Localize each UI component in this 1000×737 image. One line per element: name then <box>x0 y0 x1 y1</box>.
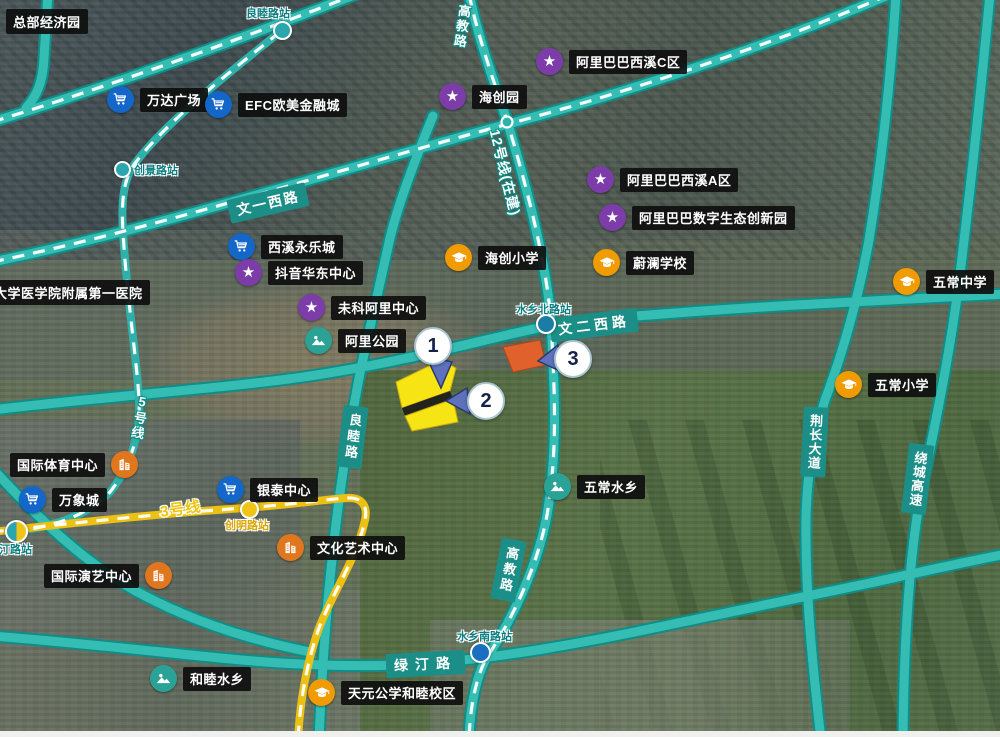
marker-number: 3 <box>567 348 578 371</box>
poi-ali-park[interactable]: 阿里公园 <box>305 327 406 354</box>
poi-hemu-watertown[interactable]: 和睦水乡 <box>150 665 251 692</box>
poi-label: 西溪永乐城 <box>261 235 343 259</box>
station-dot-shuixiang-north <box>536 314 556 334</box>
poi-tianyuan-school-hemu-campus[interactable]: 天元公学和睦校区 <box>308 679 463 706</box>
poi-intl-performing-arts-center[interactable]: 国际演艺中心 <box>44 562 172 589</box>
road-label-luting: 绿汀路 <box>385 650 465 678</box>
graduation-cap-icon <box>835 371 862 398</box>
poi-label: 抖音华东中心 <box>268 261 363 285</box>
star-icon: ★ <box>599 204 626 231</box>
poi-label: 五常中学 <box>926 270 994 294</box>
road-label-jingchang: 荆长大道 <box>800 406 829 477</box>
poi-alibaba-xixi-a[interactable]: ★ 阿里巴巴西溪A区 <box>587 166 738 193</box>
poi-label: 阿里公园 <box>338 329 406 353</box>
shopping-cart-icon <box>228 233 255 260</box>
poi-label: 银泰中心 <box>250 478 318 502</box>
station-label-chuangminglu: 创明路站 <box>225 517 269 533</box>
star-icon: ★ <box>439 83 466 110</box>
poi-label: 未科阿里中心 <box>331 296 426 320</box>
poi-label: 国际演艺中心 <box>44 564 139 588</box>
station-dot-liangmulu <box>273 21 292 40</box>
poi-label: 海创园 <box>472 85 527 109</box>
station-label-shuixiang-south: 水乡南路站 <box>457 628 512 644</box>
marker-number: 1 <box>427 335 438 358</box>
poi-label: EFC欧美金融城 <box>238 93 347 117</box>
poi-label: 阿里巴巴数字生态创新园 <box>632 206 795 230</box>
shopping-cart-icon <box>217 476 244 503</box>
area-label-headquarters-economy-park: 总部经济园 <box>6 9 88 34</box>
poi-label: 海创小学 <box>478 246 546 270</box>
shopping-cart-icon <box>107 86 134 113</box>
poi-alibaba-digital-eco-park[interactable]: ★ 阿里巴巴数字生态创新园 <box>599 204 795 231</box>
landscape-icon <box>150 665 177 692</box>
poi-culture-arts-center[interactable]: 文化艺术中心 <box>277 534 405 561</box>
poi-yintai-center[interactable]: 银泰中心 <box>217 476 318 503</box>
site-marker-3[interactable]: 3 <box>554 340 592 378</box>
graduation-cap-icon <box>893 268 920 295</box>
shopping-cart-icon <box>205 91 232 118</box>
poi-label: 阿里巴巴西溪C区 <box>569 50 687 74</box>
poi-label: 文化艺术中心 <box>310 536 405 560</box>
poi-label: 万达广场 <box>140 88 208 112</box>
poi-weike-ali-center[interactable]: ★ 未科阿里中心 <box>298 294 426 321</box>
station-label-chuangjinglu: 创景路站 <box>134 162 178 178</box>
poi-haichuang-park[interactable]: ★ 海创园 <box>439 83 527 110</box>
poi-alibaba-xixi-c[interactable]: ★ 阿里巴巴西溪C区 <box>536 48 687 75</box>
poi-intl-sports-center[interactable]: 国际体育中心 <box>10 451 138 478</box>
poi-label: 和睦水乡 <box>183 667 251 691</box>
satellite-map-canvas[interactable]: 文一西路 文二西路 绿汀路 良睦路 高教路 高教路 荆长大道 绕城高速 12号线… <box>0 0 1000 737</box>
site-marker-2[interactable]: 2 <box>467 382 505 420</box>
star-icon: ★ <box>536 48 563 75</box>
building-icon <box>145 562 172 589</box>
poi-mixc[interactable]: 万象城 <box>19 486 107 513</box>
poi-label: 国际体育中心 <box>10 453 105 477</box>
graduation-cap-icon <box>445 244 472 271</box>
poi-wuchang-watertown[interactable]: 五常水乡 <box>544 473 645 500</box>
poi-xixi-yongle-city[interactable]: 西溪永乐城 <box>228 233 343 260</box>
star-icon: ★ <box>298 294 325 321</box>
poi-douyin-east-china-center[interactable]: ★ 抖音华东中心 <box>235 259 363 286</box>
area-label-hospital: 浙江大学医学院附属第一医院 <box>0 280 150 305</box>
star-icon: ★ <box>235 259 262 286</box>
marker-number: 2 <box>480 390 491 413</box>
station-dot-lvtinglu <box>5 520 28 543</box>
poi-haichuang-primary-school[interactable]: 海创小学 <box>445 244 546 271</box>
graduation-cap-icon <box>308 679 335 706</box>
star-icon: ★ <box>587 166 614 193</box>
site-parcel-3 <box>503 340 546 372</box>
poi-label: 万象城 <box>52 488 107 512</box>
poi-label: 五常水乡 <box>577 475 645 499</box>
poi-weilan-school[interactable]: 蔚澜学校 <box>593 249 694 276</box>
poi-label: 阿里巴巴西溪A区 <box>620 168 738 192</box>
station-dot-chuangjinglu <box>114 161 131 178</box>
poi-label: 天元公学和睦校区 <box>341 681 463 705</box>
frame-bottom <box>0 731 1000 737</box>
shopping-cart-icon <box>19 486 46 513</box>
station-label-liangmulu: 良睦路站 <box>246 5 290 21</box>
poi-efc-financial-city[interactable]: EFC欧美金融城 <box>205 91 347 118</box>
building-icon <box>111 451 138 478</box>
site-marker-1[interactable]: 1 <box>414 327 452 365</box>
building-icon <box>277 534 304 561</box>
poi-wanda-plaza[interactable]: 万达广场 <box>107 86 208 113</box>
station-label-lvtinglu: 绿汀路站 <box>0 541 32 557</box>
landscape-icon <box>544 473 571 500</box>
poi-wuchang-middle-school[interactable]: 五常中学 <box>893 268 994 295</box>
poi-label: 五常小学 <box>868 373 936 397</box>
poi-wuchang-primary-school[interactable]: 五常小学 <box>835 371 936 398</box>
graduation-cap-icon <box>593 249 620 276</box>
station-label-shuixiang-north: 水乡北路站 <box>516 301 571 317</box>
station-dot-shuixiang-south <box>470 642 491 663</box>
poi-label: 蔚澜学校 <box>626 251 694 275</box>
landscape-icon <box>305 327 332 354</box>
